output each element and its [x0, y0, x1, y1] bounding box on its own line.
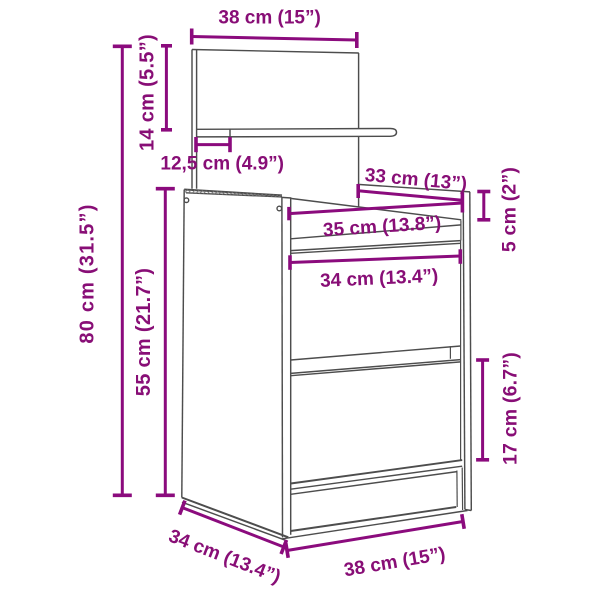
- svg-text:35 cm (13.8”): 35 cm (13.8”): [322, 213, 441, 241]
- svg-text:14 cm (5.5”): 14 cm (5.5”): [136, 34, 158, 151]
- svg-text:80 cm (31.5”): 80 cm (31.5”): [77, 203, 99, 343]
- svg-text:38 cm (15”): 38 cm (15”): [342, 544, 447, 582]
- svg-text:38 cm (15”): 38 cm (15”): [218, 8, 320, 29]
- svg-text:12,5 cm (4.9”): 12,5 cm (4.9”): [160, 154, 284, 175]
- svg-text:17 cm (6.7”): 17 cm (6.7”): [499, 352, 521, 465]
- svg-text:5 cm (2”): 5 cm (2”): [499, 167, 521, 252]
- svg-text:34 cm (13.4”): 34 cm (13.4”): [320, 266, 439, 292]
- svg-text:34 cm (13.4”): 34 cm (13.4”): [166, 526, 284, 588]
- svg-text:55 cm (21.7”): 55 cm (21.7”): [133, 268, 155, 396]
- svg-text:33 cm (13”): 33 cm (13”): [364, 165, 468, 195]
